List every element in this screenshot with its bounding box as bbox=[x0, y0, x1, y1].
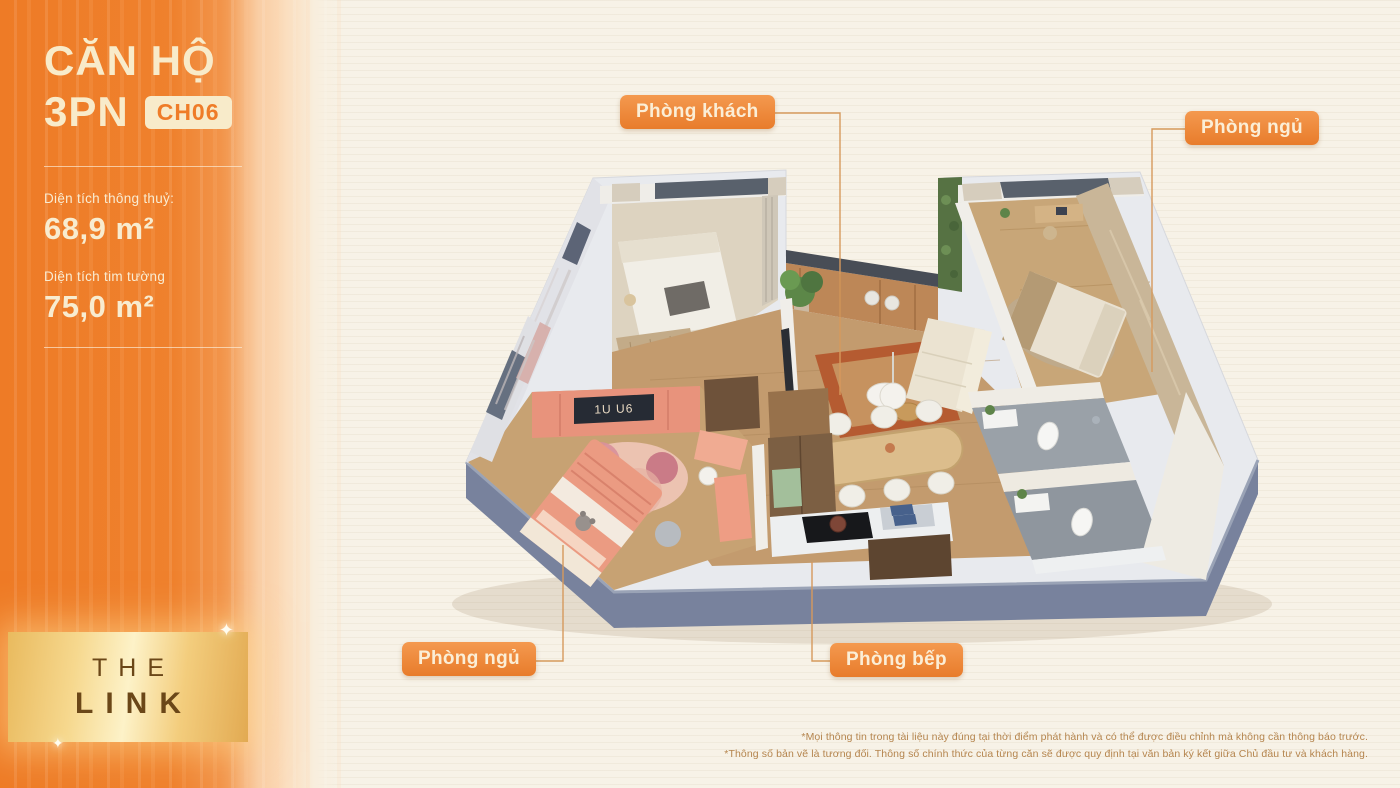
sparkle-icon: ✦ bbox=[52, 735, 64, 752]
logo-link: LINK bbox=[75, 687, 193, 721]
gross-area-value: 75,0 m² bbox=[44, 289, 264, 325]
logo-the: THE bbox=[92, 654, 175, 683]
carpet-area-label: Diện tích thông thuỷ: bbox=[44, 191, 264, 206]
gross-area-label: Diện tích tim tường bbox=[44, 269, 264, 284]
balcony bbox=[780, 177, 962, 334]
apartment-type: 3PN bbox=[44, 88, 129, 136]
disclaimer-line2: *Thông số bản vẽ là tương đối. Thông số … bbox=[724, 746, 1368, 762]
sidebar: CĂN HỘ 3PN CH06 Diện tích thông thuỷ: 68… bbox=[0, 0, 345, 788]
door bbox=[704, 376, 760, 432]
divider-bottom bbox=[44, 347, 242, 348]
bedside-lamp bbox=[624, 294, 636, 306]
room-label-living: Phòng khách bbox=[620, 95, 775, 129]
page-title: CĂN HỘ bbox=[44, 40, 264, 82]
disclaimer: *Mọi thông tin trong tài liệu này đúng t… bbox=[724, 729, 1368, 762]
sparkle-icon: ✦ bbox=[219, 620, 234, 641]
disclaimer-line1: *Mọi thông tin trong tài liệu này đúng t… bbox=[724, 729, 1368, 745]
pouf bbox=[655, 521, 681, 547]
room-label-kitchen: Phòng bếp bbox=[830, 643, 963, 677]
unit-badge: CH06 bbox=[145, 96, 232, 129]
room-label-bedroom-left: Phòng ngủ bbox=[402, 642, 536, 676]
pendant-lamp bbox=[880, 383, 906, 409]
room-label-bedroom-right: Phòng ngủ bbox=[1185, 111, 1319, 145]
chaise bbox=[714, 474, 752, 542]
wardrobe-sign-text: 1U U6 bbox=[594, 401, 633, 416]
divider-top bbox=[44, 166, 242, 167]
project-logo: ✦ ✦ THE LINK bbox=[8, 632, 248, 742]
carpet-area-value: 68,9 m² bbox=[44, 211, 264, 247]
